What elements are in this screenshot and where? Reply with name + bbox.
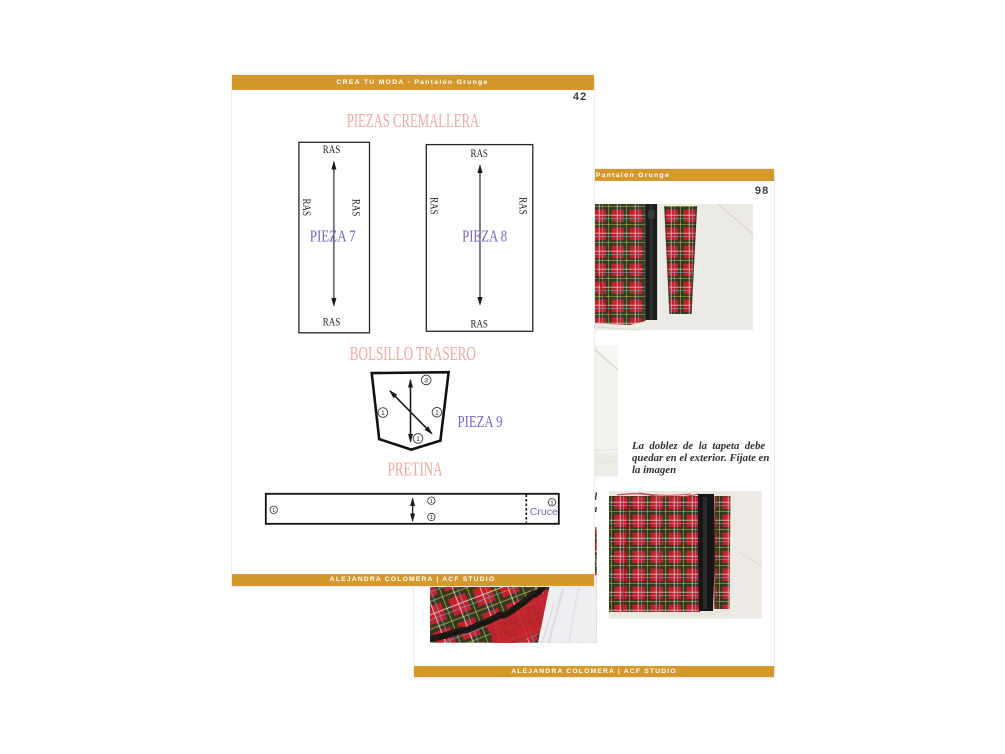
svg-text:RAS: RAS: [322, 142, 340, 156]
svg-text:1: 1: [416, 436, 420, 443]
svg-text:PIEZA 7: PIEZA 7: [309, 227, 355, 246]
svg-text:RAS: RAS: [516, 197, 530, 215]
svg-text:1: 1: [272, 508, 275, 514]
svg-text:RAS: RAS: [470, 146, 488, 160]
svg-text:RAS: RAS: [322, 315, 340, 329]
svg-text:RAS: RAS: [427, 197, 441, 215]
svg-text:1: 1: [429, 515, 432, 521]
svg-text:Cruce: Cruce: [529, 506, 557, 518]
svg-text:BOLSILLO TRASERO: BOLSILLO TRASERO: [349, 344, 475, 365]
svg-text:RAS: RAS: [349, 199, 363, 217]
svg-text:PRETINA: PRETINA: [387, 460, 442, 481]
svg-text:1: 1: [429, 499, 432, 505]
svg-text:PIEZAS CREMALLERA: PIEZAS CREMALLERA: [346, 111, 479, 132]
svg-text:PIEZA 8: PIEZA 8: [462, 227, 507, 246]
svg-text:1: 1: [435, 410, 439, 417]
svg-text:RAS: RAS: [470, 317, 488, 331]
svg-text:RAS: RAS: [299, 199, 313, 217]
svg-text:PIEZA 9: PIEZA 9: [457, 412, 502, 431]
svg-text:1: 1: [381, 410, 385, 417]
svg-text:3: 3: [424, 377, 428, 384]
